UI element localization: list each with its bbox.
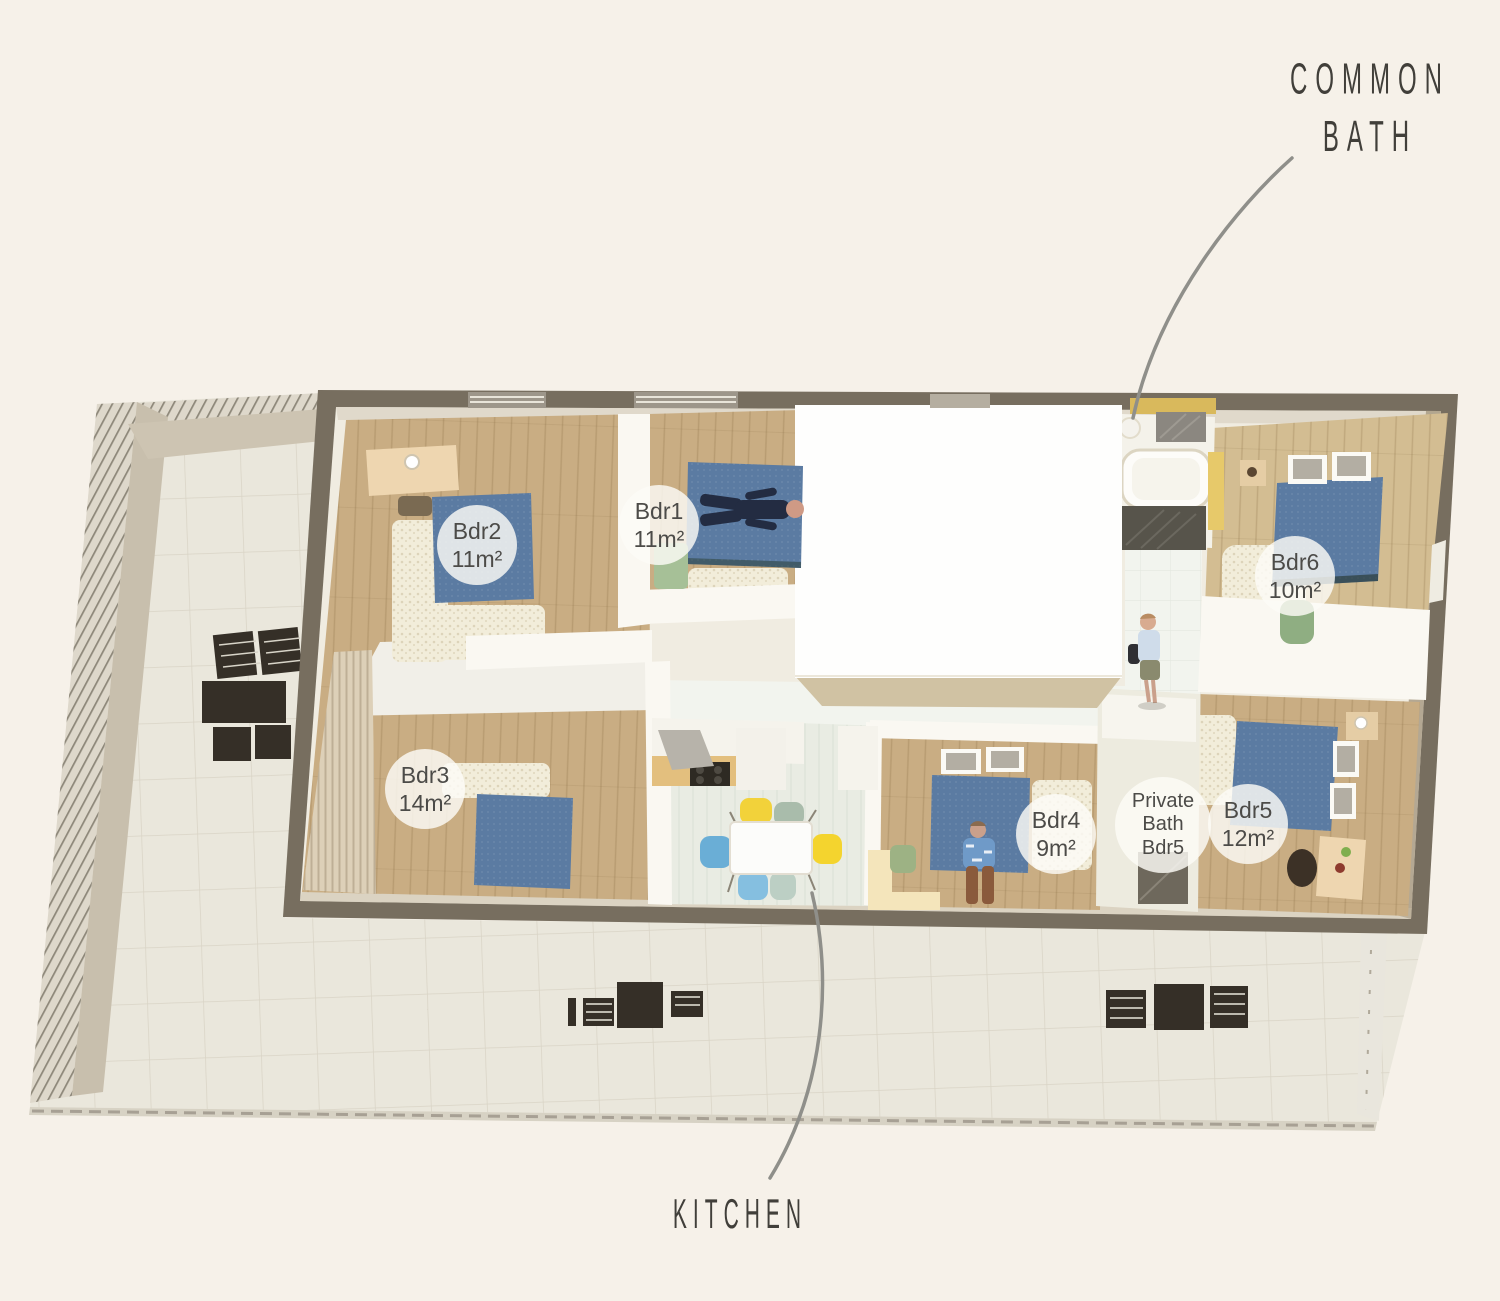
floorplan-render bbox=[0, 0, 1500, 1301]
room-badge-name: Bdr3 bbox=[401, 761, 450, 789]
leader-line-common-bath bbox=[1133, 158, 1292, 418]
kitchen-counters bbox=[652, 718, 878, 790]
desk-chair-bdr2 bbox=[398, 496, 432, 516]
room-badge-name: Bdr6 bbox=[1271, 548, 1320, 576]
annotation-kitchen: KITCHEN bbox=[630, 1192, 850, 1240]
room-badge-line: Private bbox=[1132, 790, 1194, 814]
annotation-common-bath: COMMON BATH bbox=[1240, 52, 1500, 169]
dining-chair-lightblue bbox=[738, 872, 768, 900]
dining-chair-yellow-1 bbox=[740, 798, 772, 824]
room-badge-line: Bath bbox=[1142, 813, 1183, 837]
dining-chair-sage-2 bbox=[770, 872, 796, 900]
room-badge-area: 11m² bbox=[634, 525, 685, 553]
ceiling-light bbox=[1120, 418, 1140, 438]
floorplan-scene: Bdr1 11m² Bdr2 11m² Bdr3 14m² Bdr4 9m² P… bbox=[0, 0, 1500, 1301]
annotation-line: BATH bbox=[1240, 110, 1500, 168]
white-roof-box bbox=[795, 405, 1122, 708]
room-badge-bdr6: Bdr6 10m² bbox=[1255, 536, 1335, 616]
room-badge-name: Bdr2 bbox=[453, 517, 502, 545]
dining-chair-yellow-2 bbox=[812, 834, 842, 864]
room-badge-line: Bdr5 bbox=[1142, 837, 1184, 861]
green-chair-bdr4 bbox=[890, 845, 916, 873]
room-badge-private-bath: Private Bath Bdr5 bbox=[1115, 777, 1211, 873]
room-badge-area: 9m² bbox=[1036, 834, 1076, 862]
dining-chair-blue bbox=[700, 836, 732, 868]
room-badge-name: Bdr1 bbox=[635, 497, 684, 525]
room-badge-bdr1: Bdr1 11m² bbox=[619, 485, 699, 565]
room-badge-bdr2: Bdr2 11m² bbox=[437, 505, 517, 585]
room-badge-area: 11m² bbox=[452, 545, 503, 573]
desk-chair-bdr5 bbox=[1287, 849, 1317, 887]
room-badge-bdr5: Bdr5 12m² bbox=[1208, 784, 1288, 864]
outdoor-set-bottom-right bbox=[1106, 984, 1248, 1030]
room-badge-bdr4: Bdr4 9m² bbox=[1016, 794, 1096, 874]
room-badge-area: 10m² bbox=[1269, 576, 1321, 604]
dining-table bbox=[730, 822, 812, 874]
room-badge-area: 12m² bbox=[1222, 824, 1274, 852]
room-badge-area: 14m² bbox=[399, 789, 451, 817]
room-badge-name: Bdr5 bbox=[1224, 796, 1273, 824]
annotation-line: COMMON bbox=[1240, 52, 1500, 110]
bed-bdr3 bbox=[474, 794, 573, 889]
room-badge-name: Bdr4 bbox=[1032, 806, 1081, 834]
room-badge-bdr3: Bdr3 14m² bbox=[385, 749, 465, 829]
towel-cabinet bbox=[1208, 452, 1224, 530]
